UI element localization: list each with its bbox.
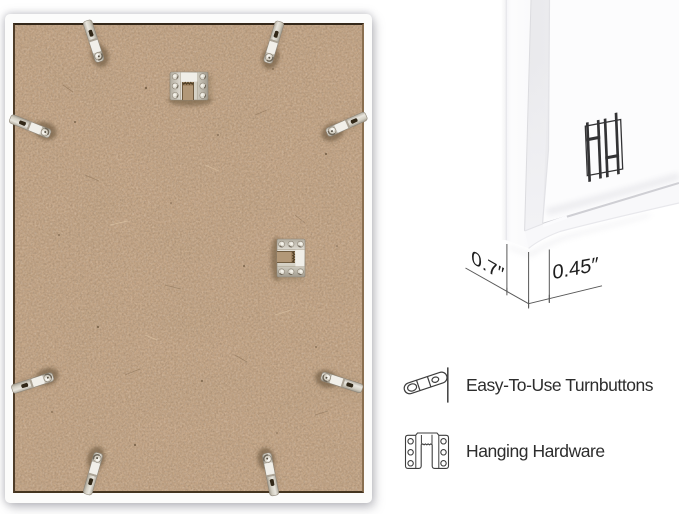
svg-text:0.45″: 0.45″ (553, 254, 599, 284)
